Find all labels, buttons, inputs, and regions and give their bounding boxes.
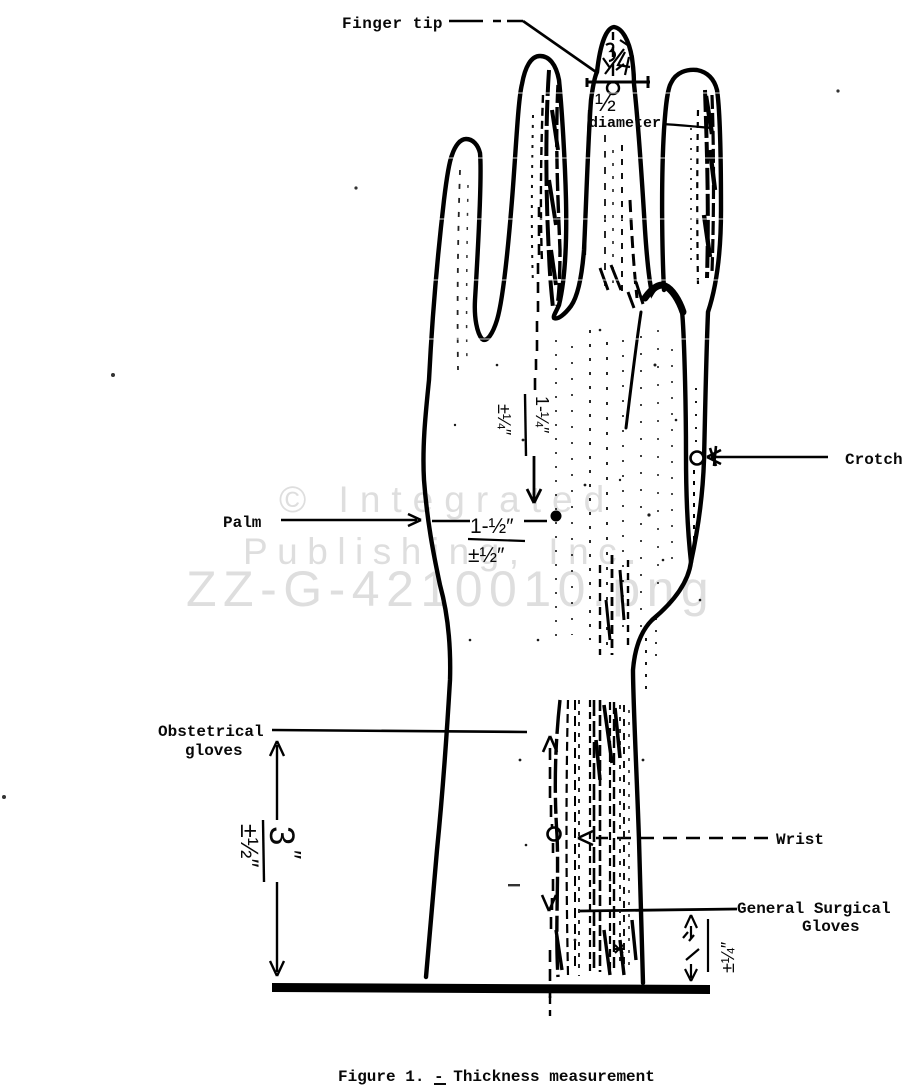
svg-text:1-¼″: 1-¼″ — [532, 396, 552, 434]
svg-text:Figure 1. - Thickness measurem: Figure 1. - Thickness measurement — [338, 1068, 655, 1085]
svg-text:General Surgical: General Surgical — [737, 900, 891, 918]
svg-text:© Integrated: © Integrated — [279, 479, 615, 520]
svg-text:Palm: Palm — [223, 514, 262, 532]
svg-text:±½″: ±½″ — [468, 544, 505, 567]
svg-text:Crotch: Crotch — [845, 451, 903, 469]
svg-text:Obstetrical: Obstetrical — [158, 723, 264, 741]
svg-text:±¼″: ±¼″ — [718, 941, 738, 973]
svg-text:±½″: ±½″ — [235, 824, 263, 868]
svg-text:Finger tip: Finger tip — [342, 15, 443, 33]
svg-text:gloves: gloves — [185, 742, 243, 760]
svg-text:1-½″: 1-½″ — [470, 515, 514, 538]
svg-text:diameter: diameter — [589, 115, 661, 132]
svg-text:3: 3 — [262, 826, 301, 845]
svg-text:ZZ-G-4210010.png: ZZ-G-4210010.png — [186, 561, 715, 617]
svg-text:Gloves: Gloves — [802, 918, 860, 936]
svg-text:Wrist: Wrist — [776, 831, 824, 849]
svg-text:″: ″ — [277, 850, 307, 859]
svg-text:±¼″: ±¼″ — [494, 404, 514, 436]
